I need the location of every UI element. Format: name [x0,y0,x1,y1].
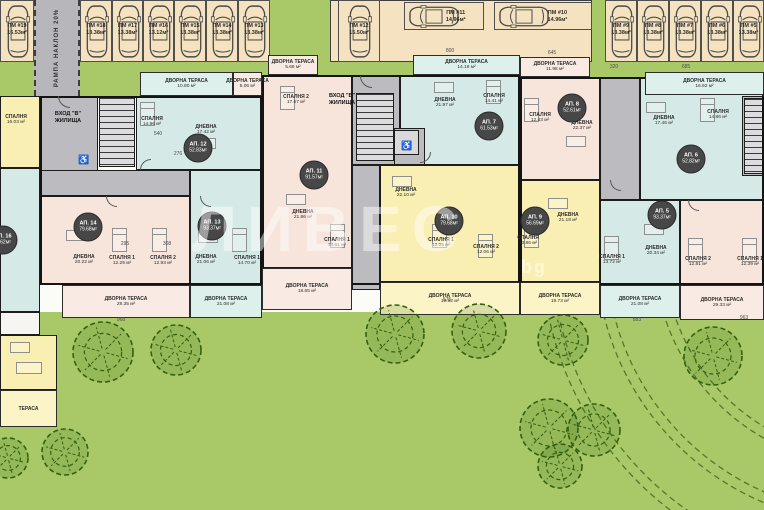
terrace-label: ДВОРНА ТЕРАСА29.33 м² [701,296,744,308]
dimension-label: 685 [682,64,690,70]
furniture-table [16,362,42,374]
room-label: СПАЛНЯ13.86 м² [517,235,539,247]
parking-spot-number: ПМ #9 [606,23,636,30]
grass-strip [270,0,330,62]
entrance-line1: ВХОД "Б" [329,93,355,100]
parking-spot-label: ПМ #913.38м² [606,23,636,36]
staircase [744,98,763,174]
room-area: 14.61 м² [324,243,350,249]
furniture-sofa [566,136,586,147]
dimension-label: 968 [117,317,125,323]
parking-spot-label: ПМ #513.38м² [734,23,763,36]
parking-spot-label: ПМ #1713.38м² [113,23,142,36]
terrace: ДВОРНА ТЕРАСА21.08 м² [600,285,680,318]
parking-spot: ПМ #713.38м² [669,0,701,62]
entrance-label: ВХОД "Б"ЖИЛИЩА [329,93,355,107]
parking-spot-label: ПМ #1513.38м² [175,23,205,36]
terrace-label: ДВОРНА ТЕРАСА5.66 м² [272,59,315,71]
dimension-label: 308 [163,241,171,247]
parking-spot-area: 13.38м² [670,30,700,37]
parking-spot: ПМ #813.38м² [637,0,669,62]
dimension-label: 540 [154,131,162,137]
apartment-badge: АП. 1191.57м² [300,161,329,190]
parking-spot-number: ПМ #8 [638,23,668,30]
apartment-area: 52.82м² [678,160,705,166]
parking-spot-area: 14.96м² [428,17,483,24]
terrace: ДВОРНА ТЕРАСА11.98 м² [520,57,590,77]
dimension-label: 883 [633,317,641,323]
room-area: 20.22 м² [73,260,94,266]
room-label: ДНЕВНА17.46 м² [653,115,674,127]
apartment-badge: АП. 852.61м² [558,94,587,123]
room-area: 17.67 м² [283,100,309,106]
terrace-area: 21.08 м² [205,302,248,308]
apartment-area: 93.37м² [649,216,676,222]
room-label: СПАЛНЯ 112.39 м² [737,256,763,268]
corridor [40,170,190,196]
lawn [0,312,764,510]
terrace-area: 10.80 м² [165,84,208,90]
terrace: ДВОРНА ТЕРАСА5.66 м² [268,55,318,75]
room-area: 17.46 м² [653,121,674,127]
room-area: 14.70 м² [234,261,260,267]
furniture-sofa [548,198,568,209]
apartment-area: 56.69м² [522,222,549,228]
apartment-badge: АП. 761.53м² [475,112,504,141]
parking-spot-area: 13.38м² [207,30,237,37]
parking-spot: ПМ #1916.53м² [0,0,34,62]
terrace-label: ДВОРНА ТЕРАСА11.98 м² [534,61,577,73]
parking-spot-label: ПМ #1413.38м² [207,23,237,36]
parking-spot-number: ПМ #14 [207,23,237,30]
terrace-label: ДВОРНА ТЕРАСА29.35 м² [105,295,148,307]
room-label: СПАЛНЯ 212.06 м² [473,244,499,256]
room-area: 13.72 м² [599,260,625,266]
room-area: 12.39 м² [737,262,763,268]
room-label: СПАЛНЯ16.03 м² [5,114,27,126]
wheelchair-icon: ♿ [78,155,89,166]
parking-spot: ПМ #613.38м² [701,0,733,62]
furniture-bed [232,228,247,252]
terrace-name: ТЕРАСА [19,405,39,411]
furniture-sofa [10,342,30,353]
terrace-label: ТЕРАСА [19,405,39,411]
parking-spot-area: 13.12м² [144,30,173,37]
parking-spot-label: ПМ #1014.96м² [524,10,591,23]
dimension-label: 645 [548,50,556,56]
room-area: 14.86 м² [707,115,729,121]
room-area: 22.10 м² [395,193,416,199]
entrance-label: ВХОД "В"ЖИЛИЩА [55,111,81,125]
furniture-sofa [286,194,306,205]
room-label: СПАЛНЯ12.43 м² [529,112,551,124]
terrace: ДВОРНА ТЕРАСА5.06 м² [233,72,262,96]
parking-spot-number: ПМ #6 [702,23,732,30]
parking-spot-area: 13.38м² [81,30,111,37]
terrace-label: ДВОРНА ТЕРАСА14.18 м² [445,59,488,71]
parking-spot: ПМ #513.38м² [733,0,764,62]
terrace-label: ДВОРНА ТЕРАСА19.73 м² [539,292,582,304]
parking-spot: ПМ #1313.38м² [238,0,270,62]
parking-spot-number: ПМ #12 [339,23,379,30]
parking-spot-label: ПМ #1215.50м² [339,23,379,36]
dimension-label: 575 [443,297,451,303]
parking-spot: ПМ #1813.38м² [80,0,112,62]
parking-spot-area: 13.38м² [702,30,732,37]
terrace-area: 14.18 м² [445,65,488,71]
staircase [99,97,135,167]
parking-spot-number: ПМ #13 [239,23,269,30]
parking-spot-area: 14.96м² [524,17,591,24]
terrace-area: 21.08 м² [619,302,662,308]
apartment-area: 79.68м² [75,228,102,234]
floor-plan: ПМ #1916.53м²ПМ #1813.38м²ПМ #1713.38м²П… [0,0,764,510]
parking-spot-label: ПМ #1114.96м² [428,10,483,23]
wheelchair-icon: ♿ [401,141,412,152]
apartment-badge: АП. 1393.37м² [198,212,227,241]
terrace-area: 29.35 м² [105,302,148,308]
room-area: 21.97 м² [434,103,455,109]
room-label: СПАЛНЯ 114.70 м² [234,255,260,267]
room-area: 21.06 м² [195,260,216,266]
terrace: ДВОРНА ТЕРАСА10.80 м² [140,72,233,96]
apartment-area: 61.53м² [476,127,503,133]
terrace-area: 18.65 м² [286,289,329,295]
room-area: 12.29 м² [109,261,135,267]
corridor [352,165,380,290]
dimension-label: 800 [446,48,454,54]
apartment-area: …62м² [0,241,17,247]
terrace-area: 5.06 м² [226,84,269,90]
apartment-area: 91.57м² [301,176,328,182]
terrace: ДВОРНА ТЕРАСА14.18 м² [413,55,520,75]
apartment-badge: АП. 1252.83м² [184,134,213,163]
parking-spot: ПМ #1713.38м² [112,0,143,62]
apartment-area: 79.68м² [436,222,463,228]
parking-spot-label: ПМ #1916.53м² [1,23,33,36]
terrace: ДВОРНА ТЕРАСА29.35 м² [62,285,190,318]
room-label: ДНЕВНА21.97 м² [434,97,455,109]
room-area: 13.86 м² [517,241,539,247]
parking-spot-number: ПМ #10 [524,10,591,17]
parking-spot-label: ПМ #613.38м² [702,23,732,36]
parking-spot: ПМ #1014.96м² [494,2,592,30]
parking-spot-label: ПМ #813.38м² [638,23,668,36]
furniture-bed [112,228,127,252]
parking-spot-area: 13.38м² [113,30,142,37]
parking-spot-area: 13.38м² [239,30,269,37]
apartment-area: 52.61м² [559,109,586,115]
parking-spot: ПМ #913.38м² [605,0,637,62]
room-area: 12.06 м² [473,250,499,256]
apartment-badge: АП. 652.82м² [677,145,706,174]
room-label: СПАЛНЯ 113.72 м² [599,254,625,266]
parking-spot-area: 16.53м² [1,30,33,37]
entrance-line1: ВХОД "В" [55,111,81,118]
furniture-sofa [434,82,454,93]
room-label: СПАЛНЯ14.96 м² [141,116,163,128]
apartment-badge: АП. 593.37м² [648,201,677,230]
parking-spot-label: ПМ #1313.38м² [239,23,269,36]
entrance-line2: ЖИЛИЩА [55,118,81,125]
room-label: ДНЕВНА20.22 м² [73,254,94,266]
parking-spot-number: ПМ #15 [175,23,205,30]
apartment-badge: АП. 1479.68м² [74,213,103,242]
parking-spot: ПМ #1513.38м² [174,0,206,62]
ramp: РАМПА НАКЛОН 20% [34,0,80,96]
room-label: СПАЛНЯ 212.93 м² [150,255,176,267]
room-area: 12.81 м² [685,262,711,268]
terrace: ДВОРНА ТЕРАСА29.33 м² [680,285,764,320]
parking-spot-area: 15.50м² [339,30,379,37]
terrace-area: 11.98 м² [534,67,577,73]
room-label: СПАЛНЯ 217.67 м² [283,94,309,106]
parking-spot-area: 13.38м² [175,30,205,37]
terrace-label: ДВОРНА ТЕРАСА16.92 м² [683,77,726,89]
room-label: ДНЕВНА21.06 м² [195,254,216,266]
parking-spot-area: 13.38м² [638,30,668,37]
dimension-label: 276 [174,151,182,157]
room-label: ДНЕВНА21.86 м² [292,209,313,221]
terrace: ДВОРНА ТЕРАСА18.65 м² [262,268,352,310]
parking-spot-number: ПМ #7 [670,23,700,30]
room-area: 22.37 м² [571,126,592,132]
parking-spot-number: ПМ #16 [144,23,173,30]
terrace-area: 16.92 м² [683,84,726,90]
dimension-label: 295 [121,241,129,247]
furniture-bed [152,228,167,252]
terrace-area: 19.73 м² [539,299,582,305]
terrace: ДВОРНА ТЕРАСА16.92 м² [645,72,764,95]
room-area: 21.18 м² [557,218,578,224]
building-room [0,96,40,168]
terrace-label: ДВОРНА ТЕРАСА21.08 м² [205,295,248,307]
building-room [0,312,40,335]
terrace: ТЕРАСА [0,390,57,427]
parking-spot: ПМ #1413.38м² [206,0,238,62]
parking-spot-number: ПМ #11 [428,10,483,17]
room-label: СПАЛНЯ 113.05 м² [428,237,454,249]
room-area: 16.03 м² [5,120,27,126]
parking-spot: ПМ #1114.96м² [404,2,484,30]
room-label: ДНЕВНА22.10 м² [395,187,416,199]
room-label: СПАЛНЯ 112.29 м² [109,255,135,267]
apartment-badge: АП. 1079.68м² [435,207,464,236]
room-label: СПАЛНЯ14.86 м² [707,109,729,121]
dimension-label: 320 [610,64,618,70]
terrace: ДВОРНА ТЕРАСА21.08 м² [190,285,262,318]
grass-strip [592,0,605,62]
room-area: 20.34 м² [645,251,666,257]
room-area: 21.86 м² [292,215,313,221]
parking-spot-number: ПМ #17 [113,23,142,30]
room-area: 12.93 м² [150,261,176,267]
terrace-label: ДВОРНА ТЕРАСА10.80 м² [165,78,208,90]
terrace-area: 29.33 м² [701,303,744,309]
terrace-label: ДВОРНА ТЕРАСА18.65 м² [286,283,329,295]
staircase [356,93,394,161]
terrace-label: ДВОРНА ТЕРАСА5.06 м² [226,78,269,90]
furniture-sofa [646,102,666,113]
room-label: СПАЛНЯ14.41 м² [483,93,505,105]
parking-spot-number: ПМ #19 [1,23,33,30]
room-area: 13.05 м² [428,243,454,249]
room-area: 14.41 м² [483,99,505,105]
apartment-area: 52.83м² [185,149,212,155]
parking-spot-label: ПМ #1613.12м² [144,23,173,36]
room-label: ДНЕВНА21.18 м² [557,212,578,224]
parking-spot: ПМ #1215.50м² [338,0,380,62]
parking-spot-label: ПМ #713.38м² [670,23,700,36]
terrace-label: ДВОРНА ТЕРАСА21.08 м² [619,295,662,307]
furniture-sofa [392,176,412,187]
terrace: ДВОРНА ТЕРАСА19.73 м² [520,282,600,315]
parking-spot-label: ПМ #1813.38м² [81,23,111,36]
room-label: СПАЛНЯ 212.81 м² [685,256,711,268]
apartment-badge: АП. 956.69м² [521,207,550,236]
room-label: СПАЛНЯ 114.61 м² [324,237,350,249]
parking-spot-number: ПМ #18 [81,23,111,30]
terrace-area: 5.66 м² [272,65,315,71]
parking-spot: ПМ #1613.12м² [143,0,174,62]
room-label: ДНЕВНА20.34 м² [645,245,666,257]
parking-spot-number: ПМ #5 [734,23,763,30]
room-area: 14.96 м² [141,122,163,128]
dimension-label: 963 [740,315,748,321]
room-area: 12.43 м² [529,118,551,124]
entrance-line2: ЖИЛИЩА [329,100,355,107]
parking-spot-area: 13.38м² [734,30,763,37]
parking-spot-area: 13.38м² [606,30,636,37]
apartment-area: 93.37м² [199,227,226,233]
ramp-label: РАМПА НАКЛОН 20% [54,9,60,87]
